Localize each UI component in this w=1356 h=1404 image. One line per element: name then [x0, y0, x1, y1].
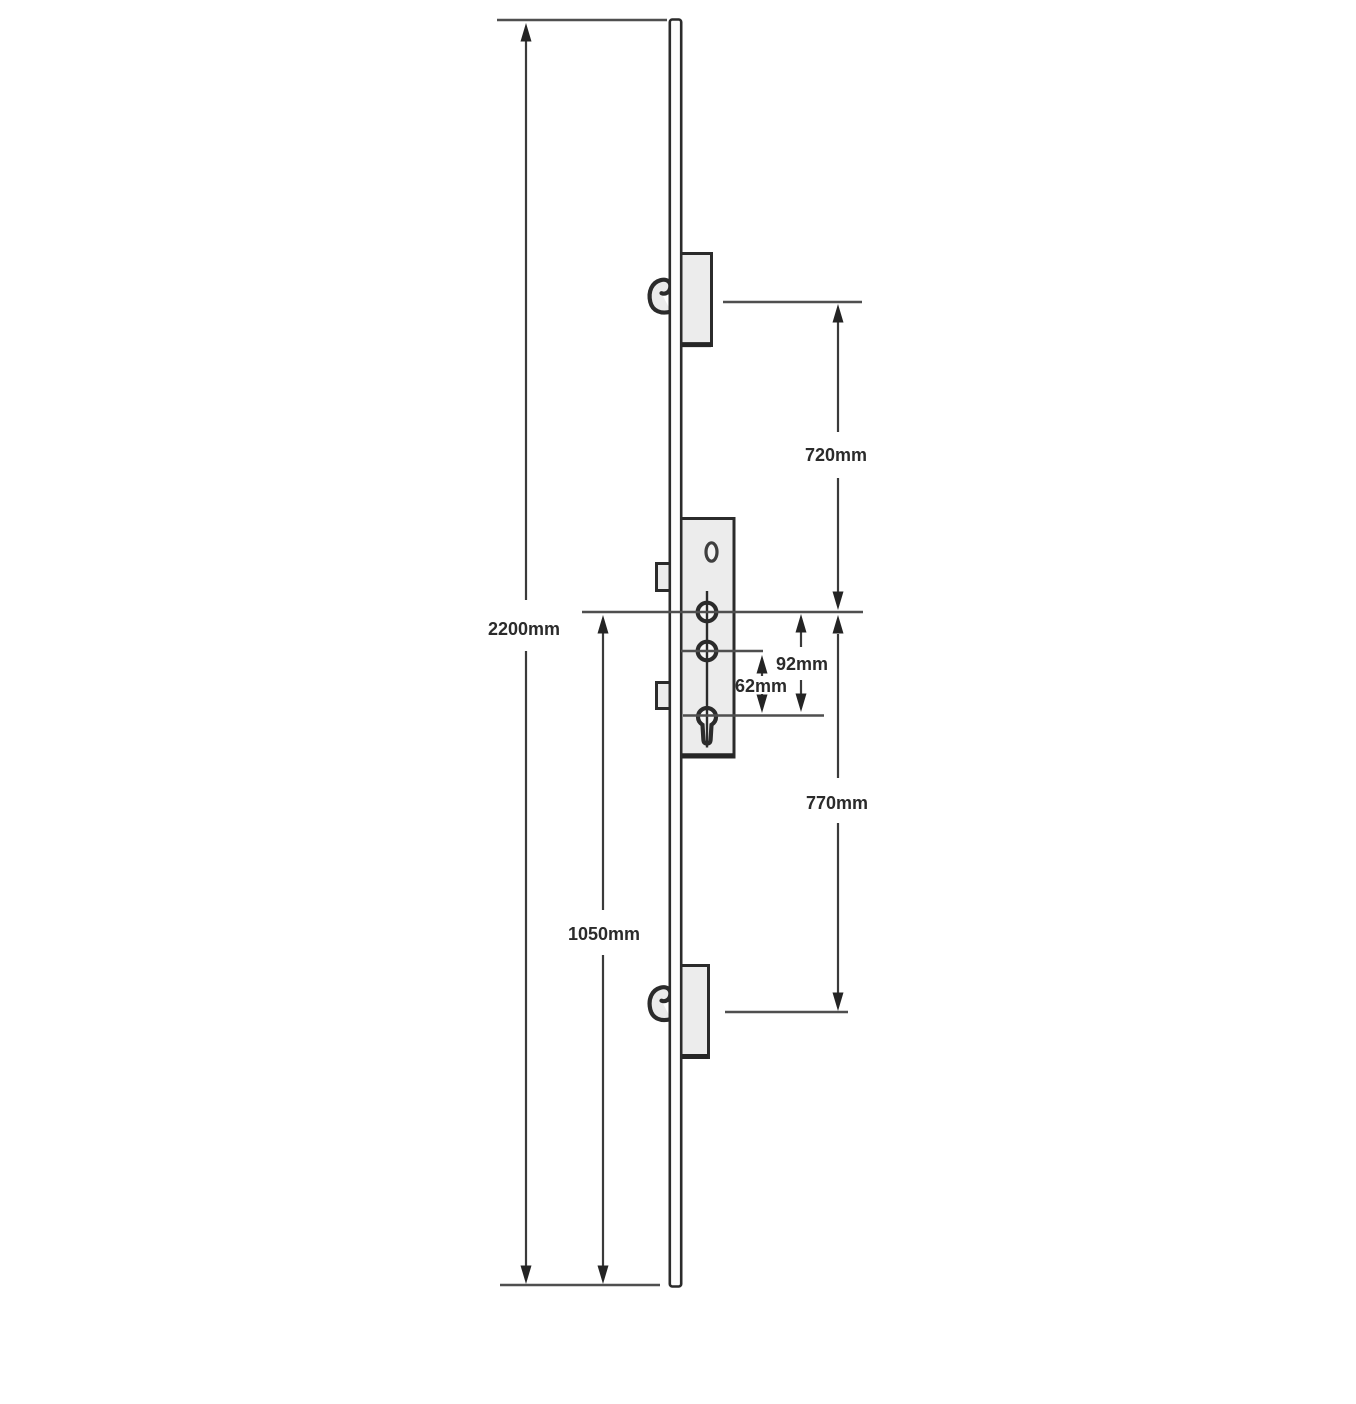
faceplate-strip	[670, 20, 681, 1287]
latch-bolt-upper	[657, 564, 671, 591]
dim-label-92mm: 92mm	[776, 654, 828, 674]
dim-label-62mm: 62mm	[735, 676, 787, 696]
dim-label-720mm: 720mm	[805, 445, 867, 465]
top-hook-case	[679, 254, 712, 346]
multipoint-lock-diagram: 2200mm 1050mm 720mm 770mm	[0, 0, 1356, 1404]
faceplate-slot-hole	[706, 543, 717, 561]
dim-label-1050mm: 1050mm	[568, 924, 640, 944]
dim-label-770mm: 770mm	[806, 793, 868, 813]
dim-label-2200mm: 2200mm	[488, 619, 560, 639]
latch-bolt-lower	[657, 683, 671, 709]
lock-dimension-diagram-page: 2200mm 1050mm 720mm 770mm	[0, 0, 1356, 1404]
